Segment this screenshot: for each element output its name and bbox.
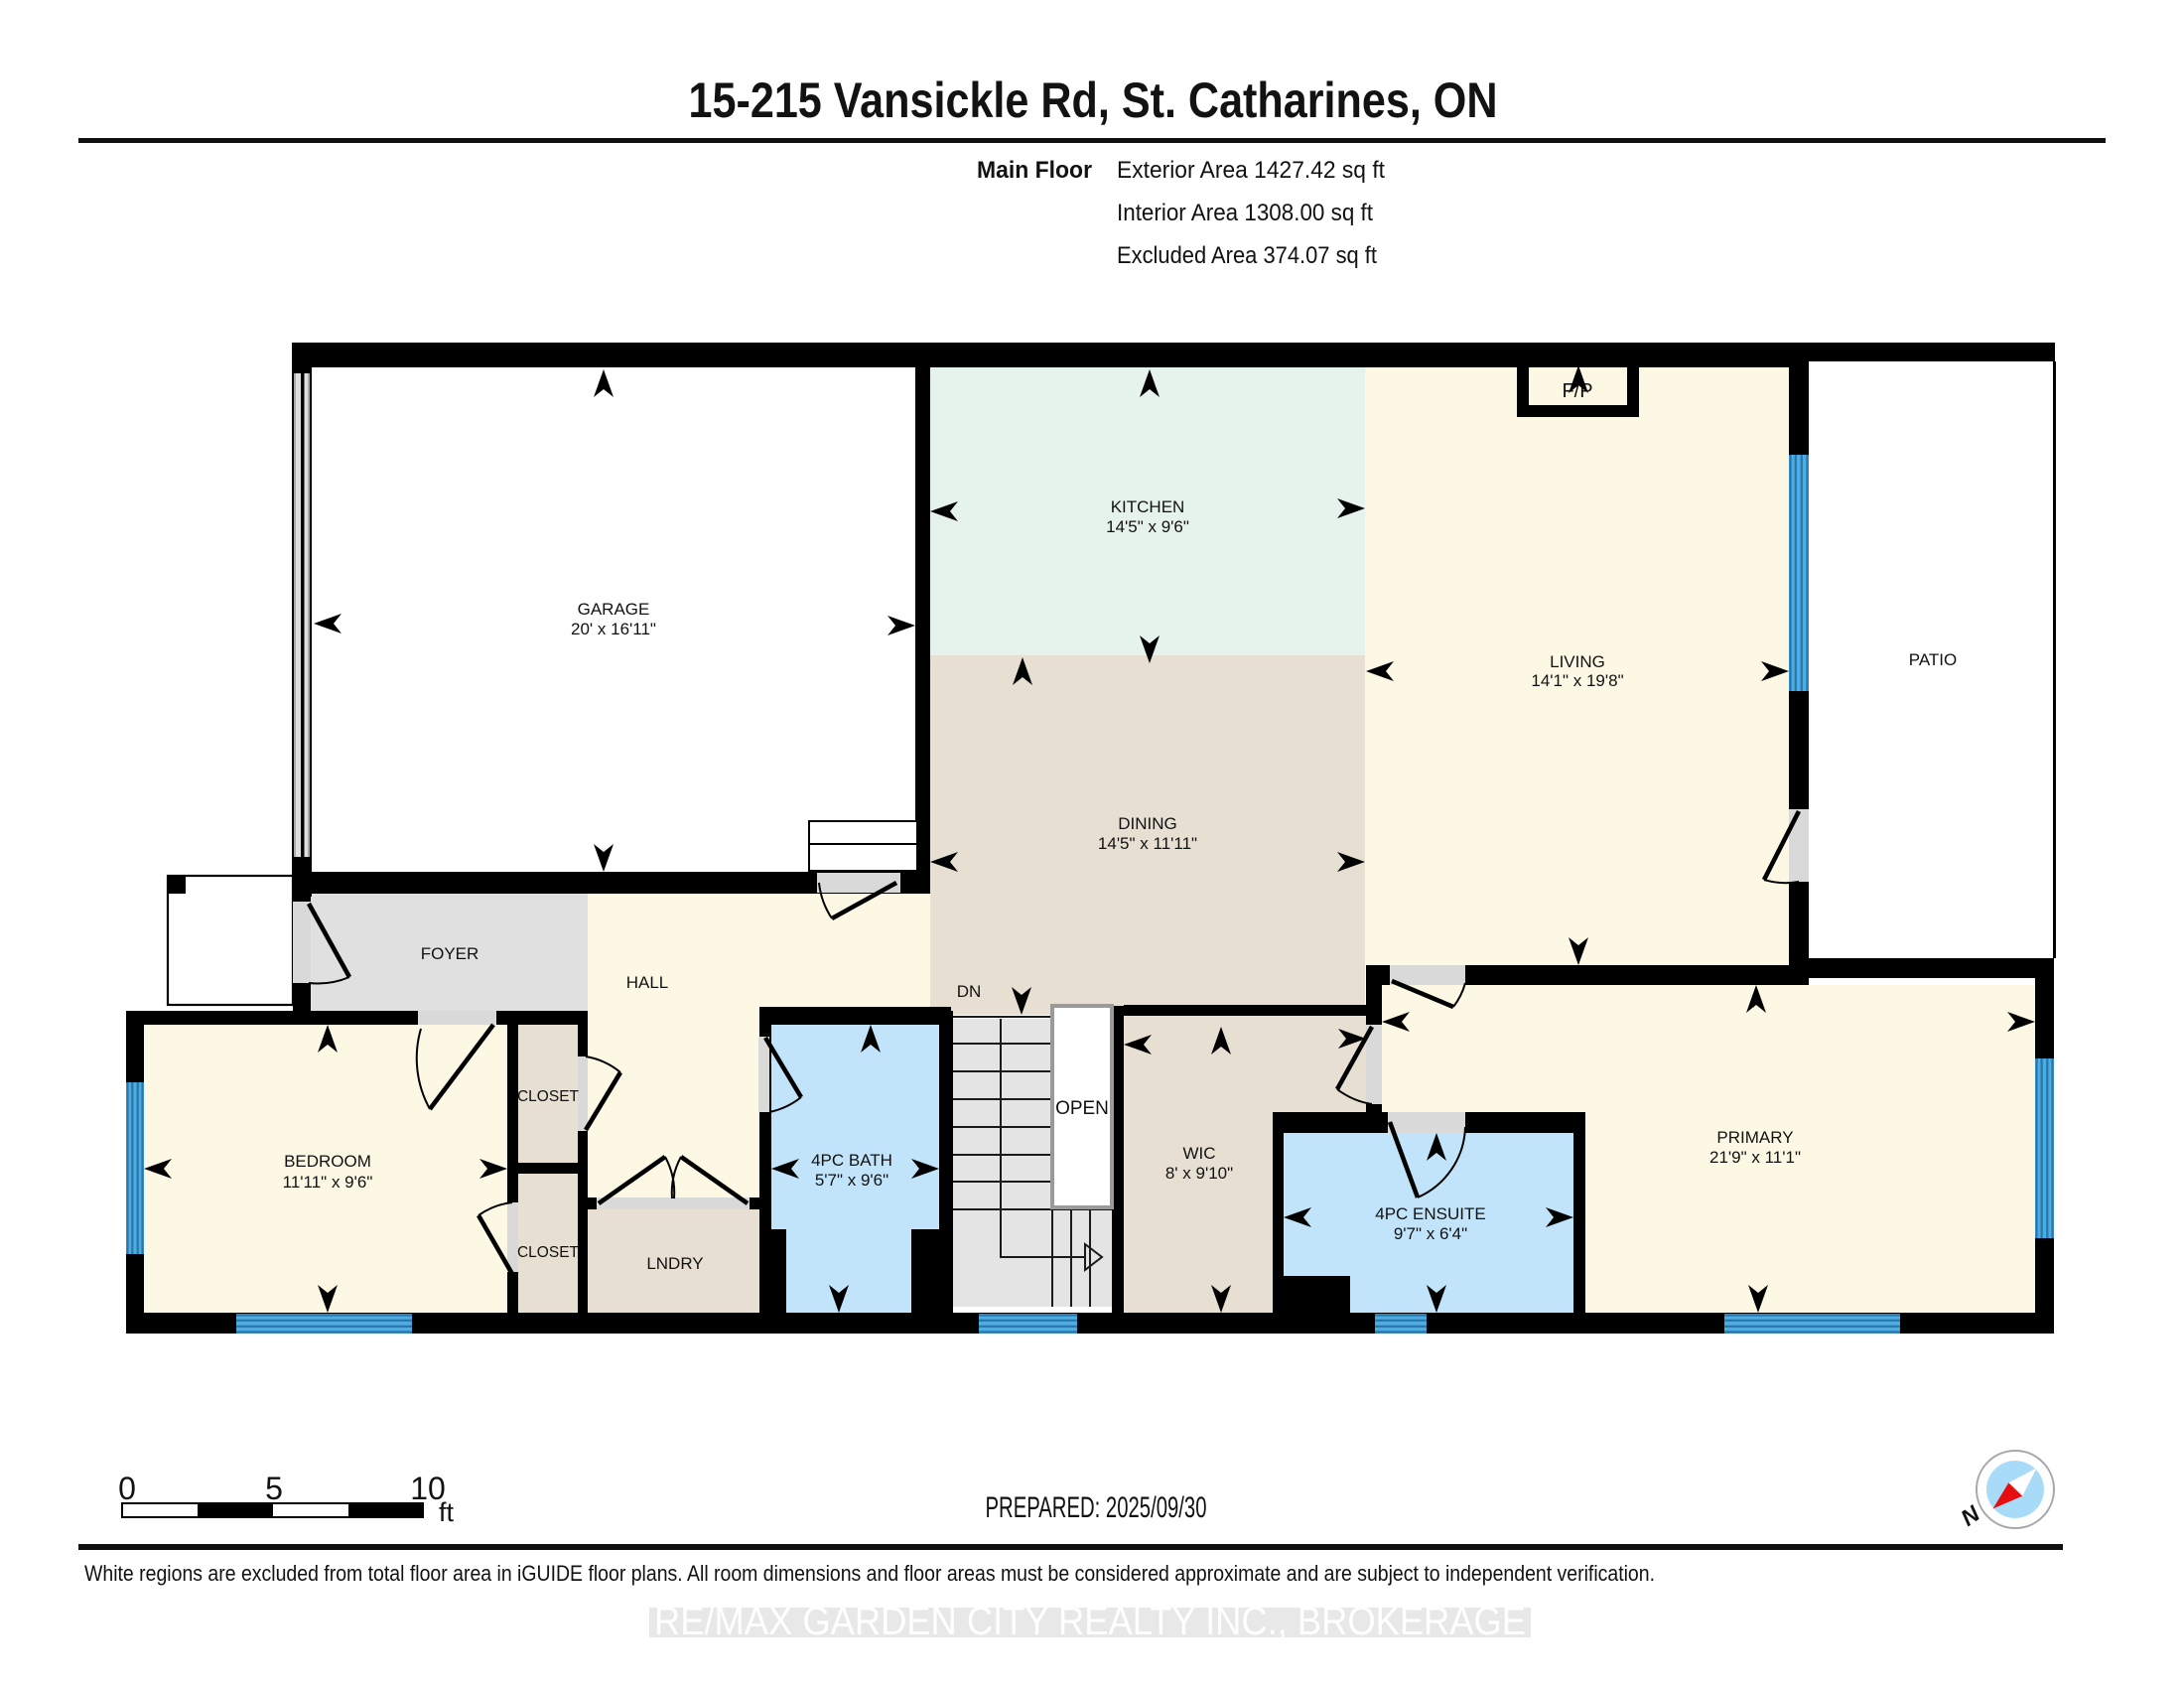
svg-text:DINING: DINING [1118,814,1177,833]
svg-text:WIC: WIC [1182,1144,1215,1163]
svg-text:FOYER: FOYER [421,944,479,963]
svg-text:14'5" x 11'11": 14'5" x 11'11" [1098,834,1197,853]
svg-text:PREPARED: 2025/09/30: PREPARED: 2025/09/30 [986,1491,1207,1524]
svg-text:8' x 9'10": 8' x 9'10" [1165,1164,1233,1183]
svg-text:4PC ENSUITE: 4PC ENSUITE [1375,1204,1485,1223]
svg-text:Main Floor: Main Floor [977,157,1092,184]
svg-text:CLOSET: CLOSET [517,1088,580,1105]
svg-text:GARAGE: GARAGE [578,600,650,619]
svg-text:Excluded Area 374.07 sq ft: Excluded Area 374.07 sq ft [1117,242,1377,269]
svg-text:Interior Area 1308.00 sq ft: Interior Area 1308.00 sq ft [1117,200,1373,226]
svg-text:11'11" x 9'6": 11'11" x 9'6" [283,1173,373,1192]
svg-text:KITCHEN: KITCHEN [1111,497,1185,516]
svg-text:20' x 16'11": 20' x 16'11" [571,620,656,638]
svg-text:OPEN: OPEN [1055,1098,1109,1119]
svg-text:14'1" x 19'8": 14'1" x 19'8" [1531,671,1623,690]
svg-text:PATIO: PATIO [1909,650,1958,669]
svg-text:5: 5 [265,1471,283,1506]
svg-text:ft: ft [439,1497,455,1527]
svg-text:PRIMARY: PRIMARY [1716,1128,1793,1147]
svg-text:4PC BATH: 4PC BATH [811,1151,892,1170]
svg-text:15-215 Vansickle Rd, St. Catha: 15-215 Vansickle Rd, St. Catharines, ON [689,72,1498,128]
svg-text:0: 0 [118,1471,136,1506]
svg-text:LNDRY: LNDRY [646,1254,703,1273]
svg-text:HALL: HALL [626,973,669,992]
svg-text:5'7" x 9'6": 5'7" x 9'6" [815,1171,888,1190]
svg-text:DN: DN [957,982,982,1001]
svg-text:Exterior Area 1427.42 sq ft: Exterior Area 1427.42 sq ft [1117,157,1385,184]
svg-text:9'7" x 6'4": 9'7" x 6'4" [1394,1224,1467,1243]
svg-text:RE/MAX GARDEN CITY REALTY INC.: RE/MAX GARDEN CITY REALTY INC., BROKERAG… [654,1600,1526,1643]
svg-text:White regions are excluded fro: White regions are excluded from total fl… [84,1561,1655,1586]
svg-text:14'5" x 9'6": 14'5" x 9'6" [1106,517,1189,536]
svg-text:CLOSET: CLOSET [517,1244,580,1261]
svg-text:BEDROOM: BEDROOM [284,1152,371,1171]
svg-text:LIVING: LIVING [1550,652,1605,671]
svg-text:21'9" x 11'1": 21'9" x 11'1" [1709,1148,1801,1167]
